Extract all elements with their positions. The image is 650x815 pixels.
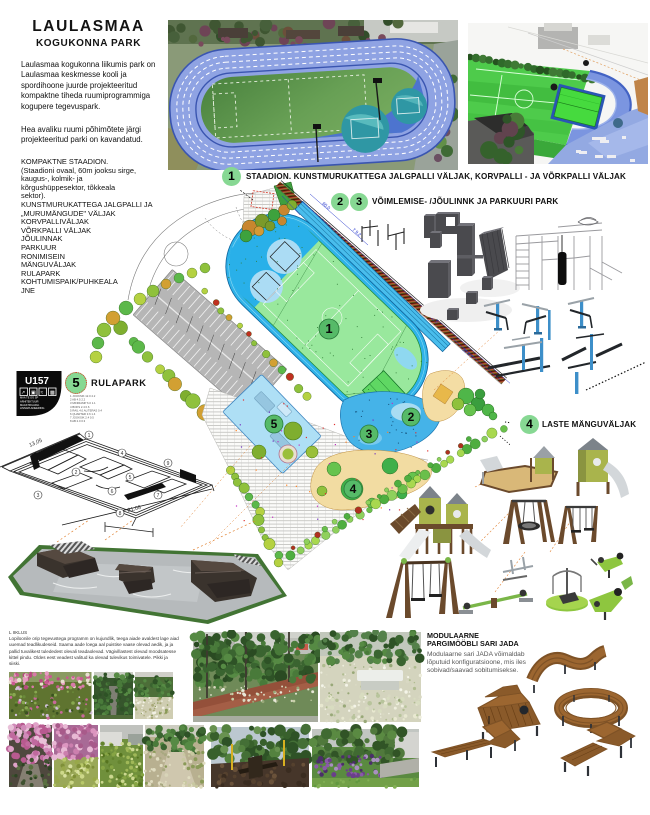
svg-text:LINNAPLANEERING: LINNAPLANEERING bbox=[20, 406, 44, 410]
svg-text:7 9.2: 7 9.2 bbox=[351, 227, 362, 238]
svg-text:▩: ▩ bbox=[50, 390, 55, 396]
svg-text:3: 3 bbox=[37, 493, 40, 499]
svg-text:≈: ≈ bbox=[41, 390, 44, 396]
svg-text:1: 1 bbox=[325, 321, 332, 336]
svg-text:4: 4 bbox=[350, 482, 357, 496]
svg-text:13,05: 13,05 bbox=[28, 438, 43, 449]
svg-text:60.0: 60.0 bbox=[321, 201, 331, 211]
svg-text:↗: ↗ bbox=[21, 390, 25, 396]
svg-text:9: 9 bbox=[167, 461, 170, 467]
svg-text:1: 1 bbox=[88, 433, 91, 439]
svg-text:8 AB 2.0: 8 AB 2.0 0.3 bbox=[70, 419, 86, 423]
svg-text:2: 2 bbox=[408, 410, 415, 424]
svg-text:6: 6 bbox=[111, 489, 114, 495]
svg-text:4: 4 bbox=[121, 451, 124, 457]
svg-text:7: 7 bbox=[157, 493, 160, 499]
svg-text:MAA TE OÜ SP: MAA TE OÜ SP bbox=[20, 396, 39, 400]
svg-text:5: 5 bbox=[271, 417, 278, 431]
svg-text:5: 5 bbox=[129, 475, 132, 481]
svg-text:U157: U157 bbox=[25, 376, 49, 387]
svg-text:8: 8 bbox=[119, 511, 122, 517]
svg-text:▣: ▣ bbox=[31, 390, 36, 396]
svg-text:2: 2 bbox=[75, 470, 78, 476]
svg-text:3: 3 bbox=[366, 427, 373, 441]
